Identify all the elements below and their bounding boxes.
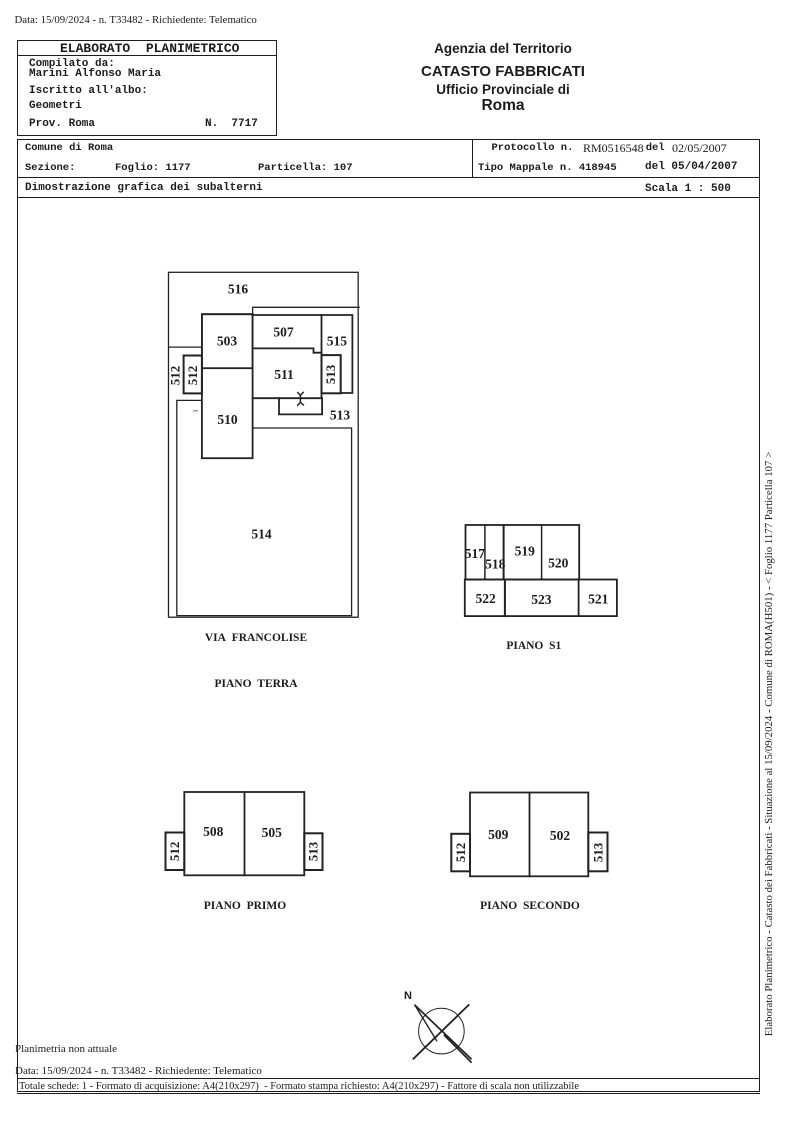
svg-text:520: 520 (548, 555, 569, 570)
svg-text:518: 518 (485, 557, 506, 572)
svg-text:503: 503 (217, 333, 238, 348)
svg-text:512: 512 (167, 842, 182, 862)
svg-text:512: 512 (168, 366, 183, 386)
svg-text:521: 521 (588, 592, 609, 607)
svg-text:505: 505 (262, 825, 283, 840)
svg-text:VIA FRANCOLISE: VIA FRANCOLISE (205, 632, 308, 644)
svg-text:512: 512 (453, 843, 468, 863)
svg-text:523: 523 (531, 592, 552, 607)
svg-text:519: 519 (515, 544, 536, 559)
svg-text:509: 509 (488, 827, 509, 842)
svg-text:502: 502 (550, 828, 571, 843)
svg-text:512: 512 (185, 366, 200, 386)
svg-text:PIANO S1: PIANO S1 (506, 640, 561, 652)
svg-text:511: 511 (274, 367, 294, 382)
svg-text:517: 517 (465, 546, 486, 561)
svg-text:514: 514 (251, 527, 272, 542)
svg-text:513: 513 (330, 408, 351, 423)
svg-text:508: 508 (203, 824, 224, 839)
svg-text:515: 515 (327, 334, 348, 349)
svg-text:513: 513 (323, 364, 338, 384)
svg-text:513: 513 (306, 841, 321, 861)
svg-text:522: 522 (475, 591, 496, 606)
svg-text:PIANO PRIMO: PIANO PRIMO (204, 900, 286, 912)
svg-text:N: N (404, 990, 412, 1002)
svg-text:513: 513 (590, 842, 605, 862)
svg-text:PIANO SECONDO: PIANO SECONDO (480, 900, 580, 912)
svg-text:516: 516 (228, 281, 249, 296)
svg-text:510: 510 (217, 412, 238, 427)
svg-text:507: 507 (273, 324, 294, 339)
svg-text:PIANO TERRA: PIANO TERRA (214, 678, 298, 690)
